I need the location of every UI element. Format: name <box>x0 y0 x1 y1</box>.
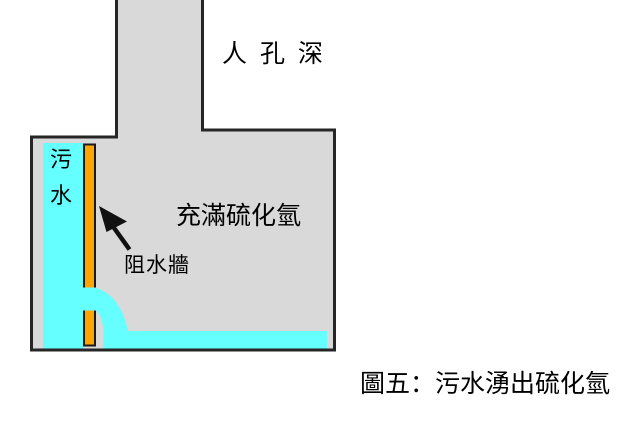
sewage-label: 污 水 <box>50 149 72 207</box>
blocking-wall-label: 阻水牆 <box>124 254 190 277</box>
figure-caption: 圖五：污水湧出硫化氫 <box>360 371 610 399</box>
sewage-label-char-2: 水 <box>50 185 72 207</box>
figure-canvas: 人孔深 充滿硫化氫 阻水牆 污 水 圖五：污水湧出硫化氫 <box>0 0 631 429</box>
sewage-label-char-1: 污 <box>50 149 72 171</box>
blocking-wall <box>84 145 95 346</box>
shaft-depth-label: 人孔深 <box>222 41 336 69</box>
gas-chamber-label: 充滿硫化氫 <box>176 203 301 231</box>
